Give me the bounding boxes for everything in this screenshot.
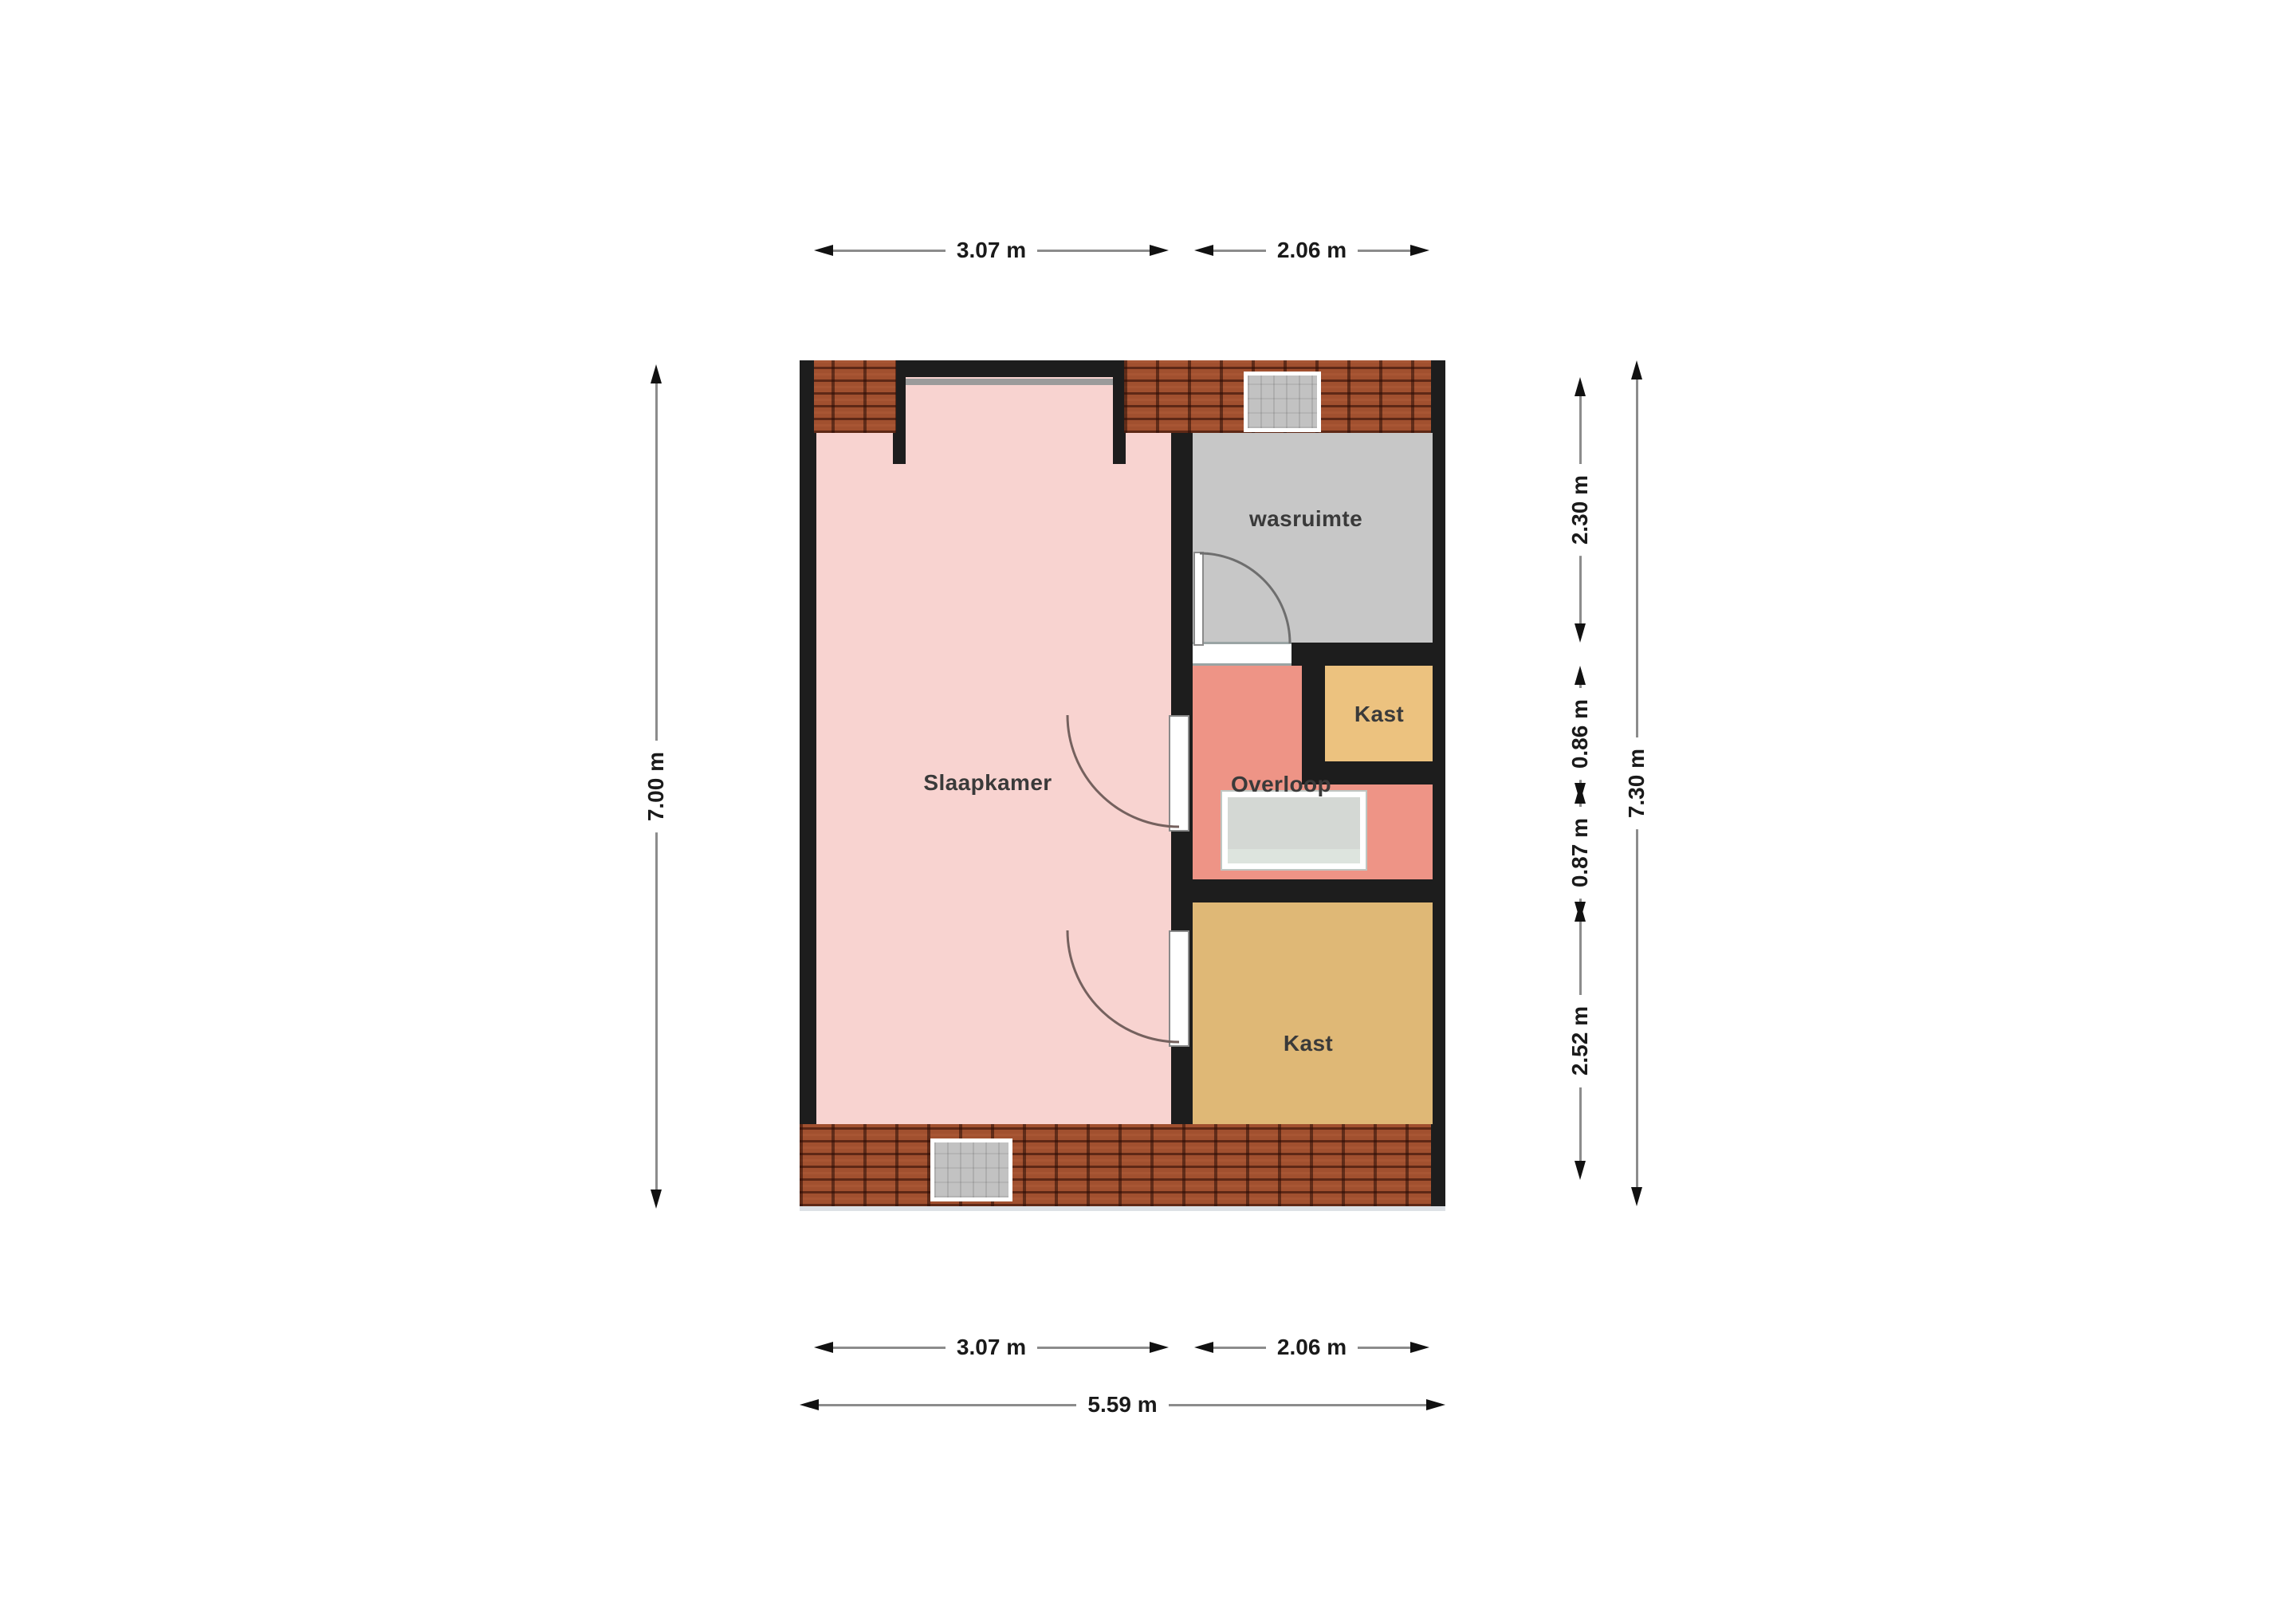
- dimension-value: 3.07 m: [946, 1335, 1037, 1360]
- arrow-up-icon: [1575, 666, 1586, 685]
- dimension-left-total: 7.00 m: [645, 364, 667, 1209]
- arrow-down-icon: [1575, 623, 1586, 643]
- arrow-up-icon: [1575, 902, 1586, 922]
- dimension-bottom-slaapkamer: 3.07 m: [814, 1336, 1169, 1359]
- dimension-value: 7.30 m: [1624, 737, 1649, 829]
- dimension-right-wasruimte: 2.30 m: [1569, 377, 1591, 643]
- stair-opening: [1222, 792, 1366, 869]
- dimension-value: 2.30 m: [1567, 464, 1593, 556]
- dimension-bottom-total: 5.59 m: [800, 1394, 1445, 1416]
- label-wasruimte: wasruimte: [1249, 506, 1362, 532]
- arrow-left-icon: [814, 245, 833, 256]
- dimension-value: 2.06 m: [1266, 238, 1358, 263]
- arrow-left-icon: [1194, 1342, 1213, 1353]
- dimension-right-total: 7.30 m: [1626, 360, 1648, 1206]
- wall-cap-bottom-right: [1431, 1124, 1445, 1206]
- roof-strip-top-left: [800, 360, 896, 433]
- door-threshold-wasruimte: [1193, 642, 1291, 666]
- dimension-value: 7.00 m: [643, 741, 669, 832]
- arrow-right-icon: [1426, 1399, 1445, 1410]
- arrow-up-icon: [651, 364, 662, 383]
- arrow-right-icon: [1150, 1342, 1169, 1353]
- arrow-up-icon: [1575, 377, 1586, 396]
- dimension-top-slaapkamer: 3.07 m: [814, 239, 1169, 261]
- dimension-right-kast-lower: 2.52 m: [1569, 902, 1591, 1180]
- room-slaapkamer: [816, 377, 1171, 1124]
- roof-strip-bottom: [800, 1124, 1445, 1206]
- arrow-down-icon: [651, 1189, 662, 1209]
- door-leaf-slaapkamer-kast: [1169, 930, 1189, 1047]
- arrow-right-icon: [1410, 245, 1429, 256]
- arrow-down-icon: [1631, 1187, 1642, 1206]
- dimension-right-kast-upper: 0.86 m: [1569, 666, 1591, 761]
- arrow-down-icon: [1575, 1161, 1586, 1180]
- dimension-value: 0.87 m: [1567, 807, 1593, 899]
- skylight-window-bottom: [930, 1138, 1012, 1201]
- label-slaapkamer: Slaapkamer: [923, 770, 1052, 796]
- dimension-right-overloop: 0.87 m: [1569, 784, 1591, 879]
- dimension-value: 2.06 m: [1266, 1335, 1358, 1360]
- label-kast-lower: Kast: [1284, 1031, 1333, 1056]
- room-kast-lower: [1193, 902, 1433, 1124]
- arrow-left-icon: [1194, 245, 1213, 256]
- arrow-right-icon: [1150, 245, 1169, 256]
- plan-shadow: [800, 1206, 1445, 1211]
- dimension-value: 0.86 m: [1567, 688, 1593, 780]
- arrow-up-icon: [1631, 360, 1642, 379]
- wall-cap-top-right: [1431, 360, 1445, 433]
- dimension-bottom-right-column: 2.06 m: [1194, 1336, 1429, 1359]
- dimension-value: 5.59 m: [1076, 1392, 1168, 1418]
- dimension-value: 2.52 m: [1567, 995, 1593, 1087]
- arrow-left-icon: [814, 1342, 833, 1353]
- floorplan-canvas: Slaapkamer wasruimte Kast Overloop Kast …: [0, 0, 2296, 1624]
- arrow-right-icon: [1410, 1342, 1429, 1353]
- arrow-up-icon: [1575, 784, 1586, 804]
- dimension-top-right-column: 2.06 m: [1194, 239, 1429, 261]
- arrow-left-icon: [800, 1399, 819, 1410]
- dormer-window-sill: [906, 379, 1113, 385]
- door-leaf-slaapkamer-overloop: [1169, 715, 1189, 832]
- door-leaf-wasruimte: [1193, 552, 1204, 646]
- label-kast-upper: Kast: [1354, 702, 1404, 727]
- dimension-value: 3.07 m: [946, 238, 1037, 263]
- label-overloop: Overloop: [1231, 772, 1331, 797]
- wall-cap-top-left: [800, 360, 814, 433]
- skylight-window-top: [1244, 372, 1321, 432]
